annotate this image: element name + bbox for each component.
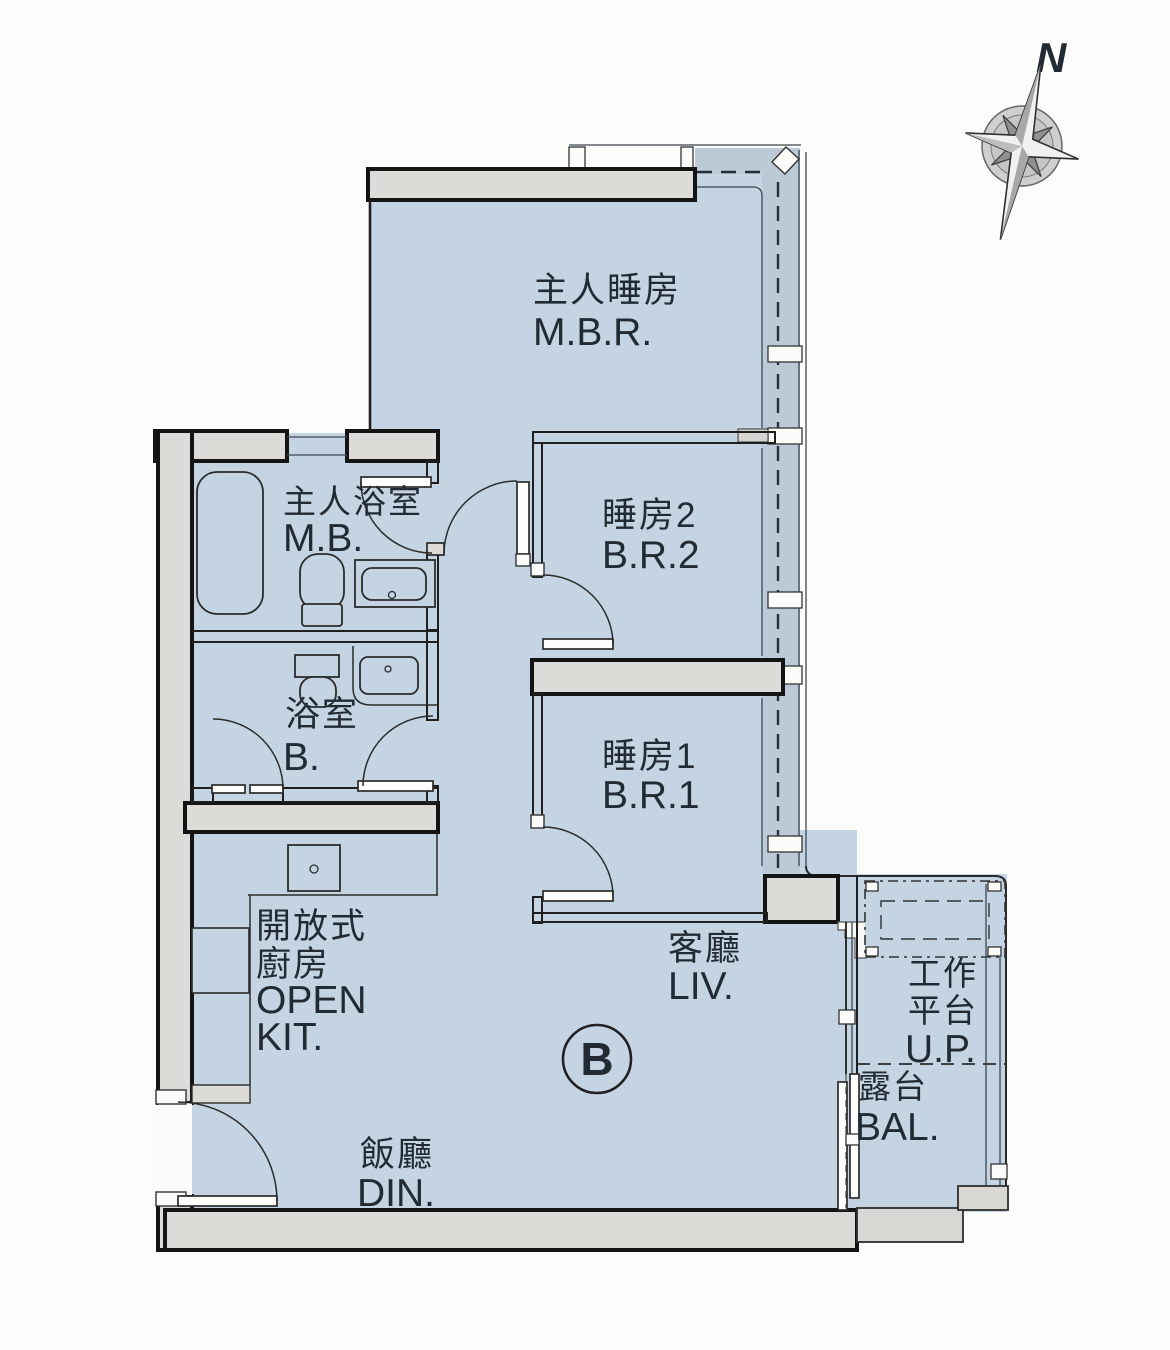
label-living-en: LIV. bbox=[668, 965, 734, 1008]
unit-badge-letter: B bbox=[580, 1033, 613, 1085]
label-up-zh1: 工作 bbox=[908, 955, 978, 992]
wall-south bbox=[165, 1210, 857, 1250]
entry-opening bbox=[158, 1103, 192, 1195]
wall-mb-north-right bbox=[347, 431, 438, 461]
label-dining-zh: 飯廳 bbox=[360, 1135, 434, 1174]
bath-sink bbox=[360, 657, 418, 694]
window-mullion bbox=[768, 592, 802, 608]
label-bedroom2-en: B.R.2 bbox=[602, 534, 700, 577]
wall-west bbox=[158, 431, 192, 1103]
compass-main-star bbox=[944, 51, 1098, 252]
label-kitchen-zh1: 開放式 bbox=[256, 907, 367, 946]
mb-toilet-base bbox=[302, 604, 342, 626]
wall-stub bbox=[738, 429, 768, 442]
label-bathroom-zh: 浴室 bbox=[285, 695, 359, 734]
label-bedroom1-en: B.R.1 bbox=[602, 774, 700, 817]
mb-sink bbox=[362, 568, 426, 600]
label-bedroom1-zh: 睡房1 bbox=[602, 737, 697, 776]
bath-door-leaf bbox=[358, 781, 433, 791]
wall-br2-br1-divider bbox=[532, 660, 783, 694]
label-balcony-en: BAL. bbox=[855, 1106, 940, 1149]
parapet-notch bbox=[991, 1164, 1007, 1179]
structural-column bbox=[765, 876, 838, 922]
label-bathroom-en: B. bbox=[283, 736, 320, 779]
kitchen-cabinet-end bbox=[192, 1085, 250, 1103]
bathtub bbox=[197, 472, 263, 614]
balcony-parapet-step bbox=[958, 1186, 1008, 1210]
label-balcony-zh: 露台 bbox=[858, 1068, 928, 1105]
kitchen-sink bbox=[288, 845, 340, 891]
label-up-en: U.P. bbox=[905, 1028, 976, 1071]
facade-fin bbox=[569, 147, 585, 170]
label-master-bath-zh: 主人浴室 bbox=[283, 483, 423, 520]
floorplan-svg: B 主人睡房 M.B.R. 睡房2 B.R.2 睡房1 B.R.1 主人浴室 M… bbox=[0, 0, 1170, 1350]
br1-door-leaf bbox=[543, 891, 613, 901]
label-bedroom2-zh: 睡房2 bbox=[602, 496, 697, 535]
compass-rose: N bbox=[944, 34, 1098, 253]
label-master-bedroom-en: M.B.R. bbox=[533, 311, 652, 354]
br2-door-leaf bbox=[543, 639, 613, 649]
label-dining-en: DIN. bbox=[357, 1172, 435, 1215]
label-master-bath-en: M.B. bbox=[283, 517, 363, 560]
wall-bath-kitchen bbox=[185, 803, 438, 832]
wall-mbr-north bbox=[368, 169, 695, 200]
bath-door2-leaf bbox=[212, 785, 245, 793]
ac-platform bbox=[865, 881, 1005, 957]
bath-toilet-tank bbox=[295, 655, 339, 677]
entry-door-leaf bbox=[178, 1196, 277, 1206]
window-mullion bbox=[768, 428, 802, 444]
label-living-zh: 客廳 bbox=[668, 929, 742, 968]
kitchen-appliance bbox=[192, 928, 249, 993]
label-kitchen-en2: KIT. bbox=[256, 1016, 323, 1059]
mb-toilet-bowl bbox=[300, 554, 344, 610]
mbr-door-leaf bbox=[517, 482, 529, 554]
window-mullion bbox=[768, 346, 802, 362]
bath-door2-leaf bbox=[250, 785, 283, 793]
window-zone-right bbox=[762, 148, 800, 874]
balcony-parapet bbox=[857, 1208, 963, 1242]
window-mullion bbox=[768, 836, 802, 852]
label-up-zh2: 平台 bbox=[908, 992, 978, 1029]
floorplan-canvas: B 主人睡房 M.B.R. 睡房2 B.R.2 睡房1 B.R.1 主人浴室 M… bbox=[0, 0, 1170, 1350]
label-master-bedroom-zh: 主人睡房 bbox=[533, 271, 681, 310]
compass-north-label: N bbox=[1036, 34, 1068, 81]
